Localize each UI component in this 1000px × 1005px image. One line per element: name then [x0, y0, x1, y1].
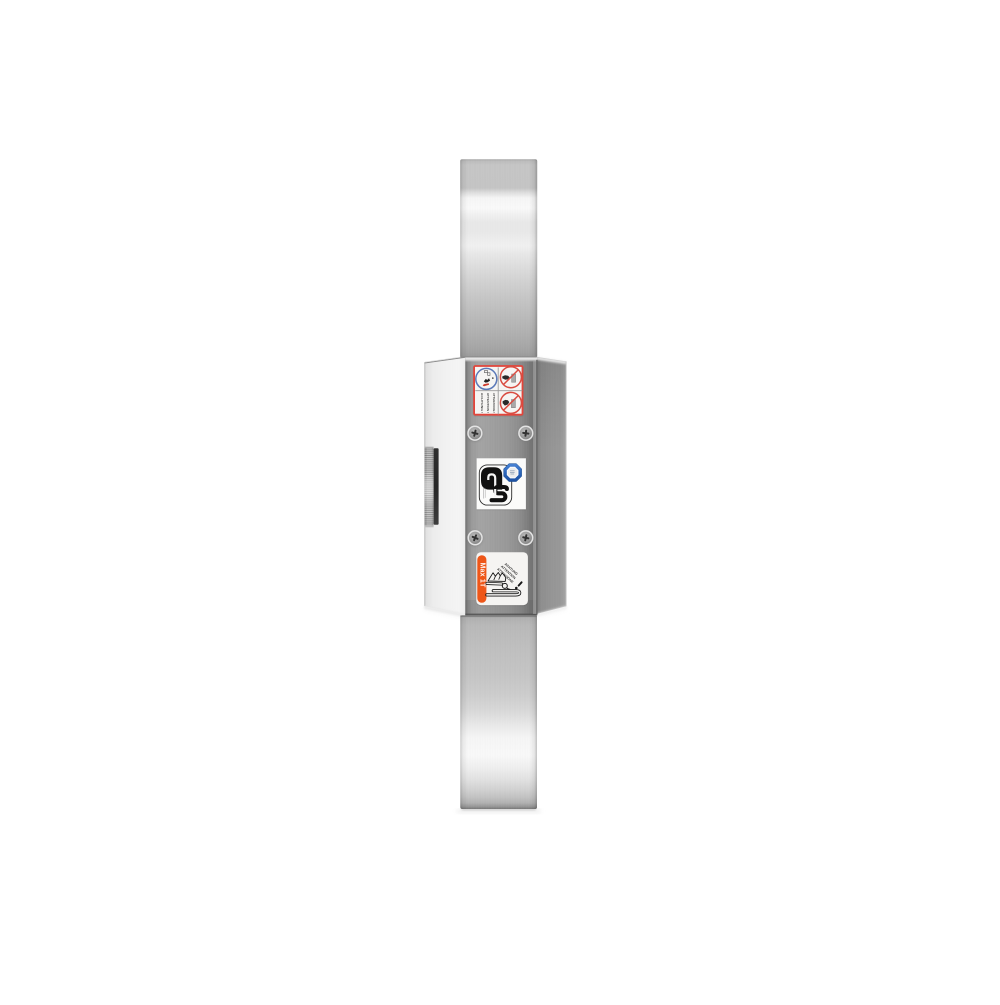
svg-text:ACHTUNG !: ACHTUNG ! [480, 393, 484, 414]
svg-text:ATTENZIONE !: ATTENZIONE ! [492, 393, 496, 414]
svg-text:Max 1T: Max 1T [478, 563, 485, 588]
svg-text:ATTENTION !: ATTENTION ! [486, 393, 490, 414]
